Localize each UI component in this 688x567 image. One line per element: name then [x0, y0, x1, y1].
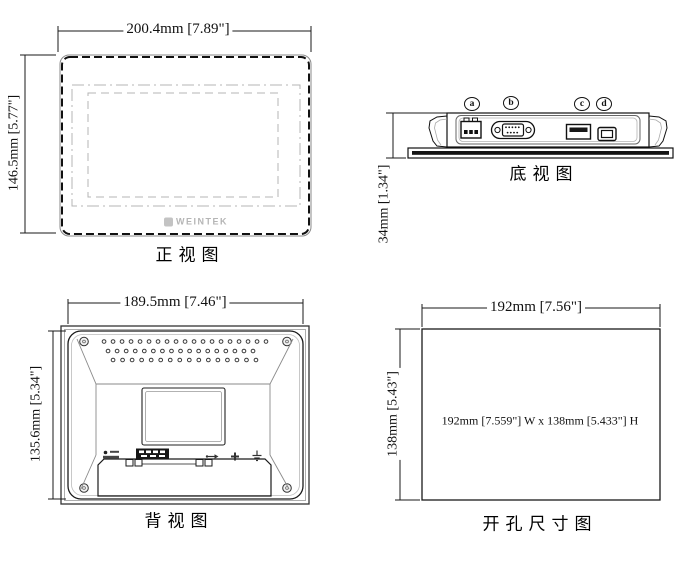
front-view-caption: 正视图: [150, 247, 225, 264]
bottom-height-dimension: 34mm [1.34"]: [378, 162, 393, 247]
back-recess-lines: [77, 339, 293, 489]
usb-client-port: [598, 128, 616, 141]
cutout-size-note: 192mm [7.559"] W x 138mm [5.433"] H: [439, 415, 642, 428]
bottom-view-caption: 底视图: [504, 166, 579, 183]
back-view-dimension-lines: [48, 299, 303, 499]
brand-logo: WEINTEK: [164, 218, 228, 227]
port-callout-d: d: [596, 97, 612, 111]
weintek-logo-icon: [164, 218, 173, 227]
ventilation-holes: [104, 342, 266, 361]
brand-logo-text: WEINTEK: [176, 218, 228, 227]
usb-symbol-icon: [206, 454, 219, 458]
cutout-view-caption: 开孔尺寸图: [477, 516, 598, 533]
port-callout-b: b: [503, 96, 519, 110]
port-callout-c: c: [574, 97, 590, 111]
front-view-panel: [60, 55, 311, 236]
usb-host-port: [567, 125, 591, 140]
port-callout-a: a: [464, 97, 480, 111]
front-height-dimension: 146.5mm [5.77"]: [8, 92, 23, 194]
power-terminal-port: [461, 118, 481, 138]
power-marking-icon: [103, 451, 119, 459]
front-width-dimension: 200.4mm [7.89"]: [123, 22, 232, 38]
hmi-dimension-drawing: 200.4mm [7.89"] 146.5mm [5.77"] WEINTEK …: [0, 0, 688, 567]
cutout-height-dimension: 138mm [5.43"]: [387, 368, 402, 460]
terminal-cover: [98, 459, 271, 496]
bottom-view-body: [408, 113, 673, 158]
terminal-block-icon: [136, 449, 169, 460]
cutout-width-dimension: 192mm [7.56"]: [487, 300, 585, 316]
back-width-dimension: 189.5mm [7.46"]: [120, 295, 229, 311]
back-height-dimension: 135.6mm [5.34"]: [30, 363, 45, 465]
drawing-linework: [0, 0, 688, 567]
serial-db9-port: [492, 122, 535, 139]
back-view-caption: 背视图: [139, 513, 214, 530]
